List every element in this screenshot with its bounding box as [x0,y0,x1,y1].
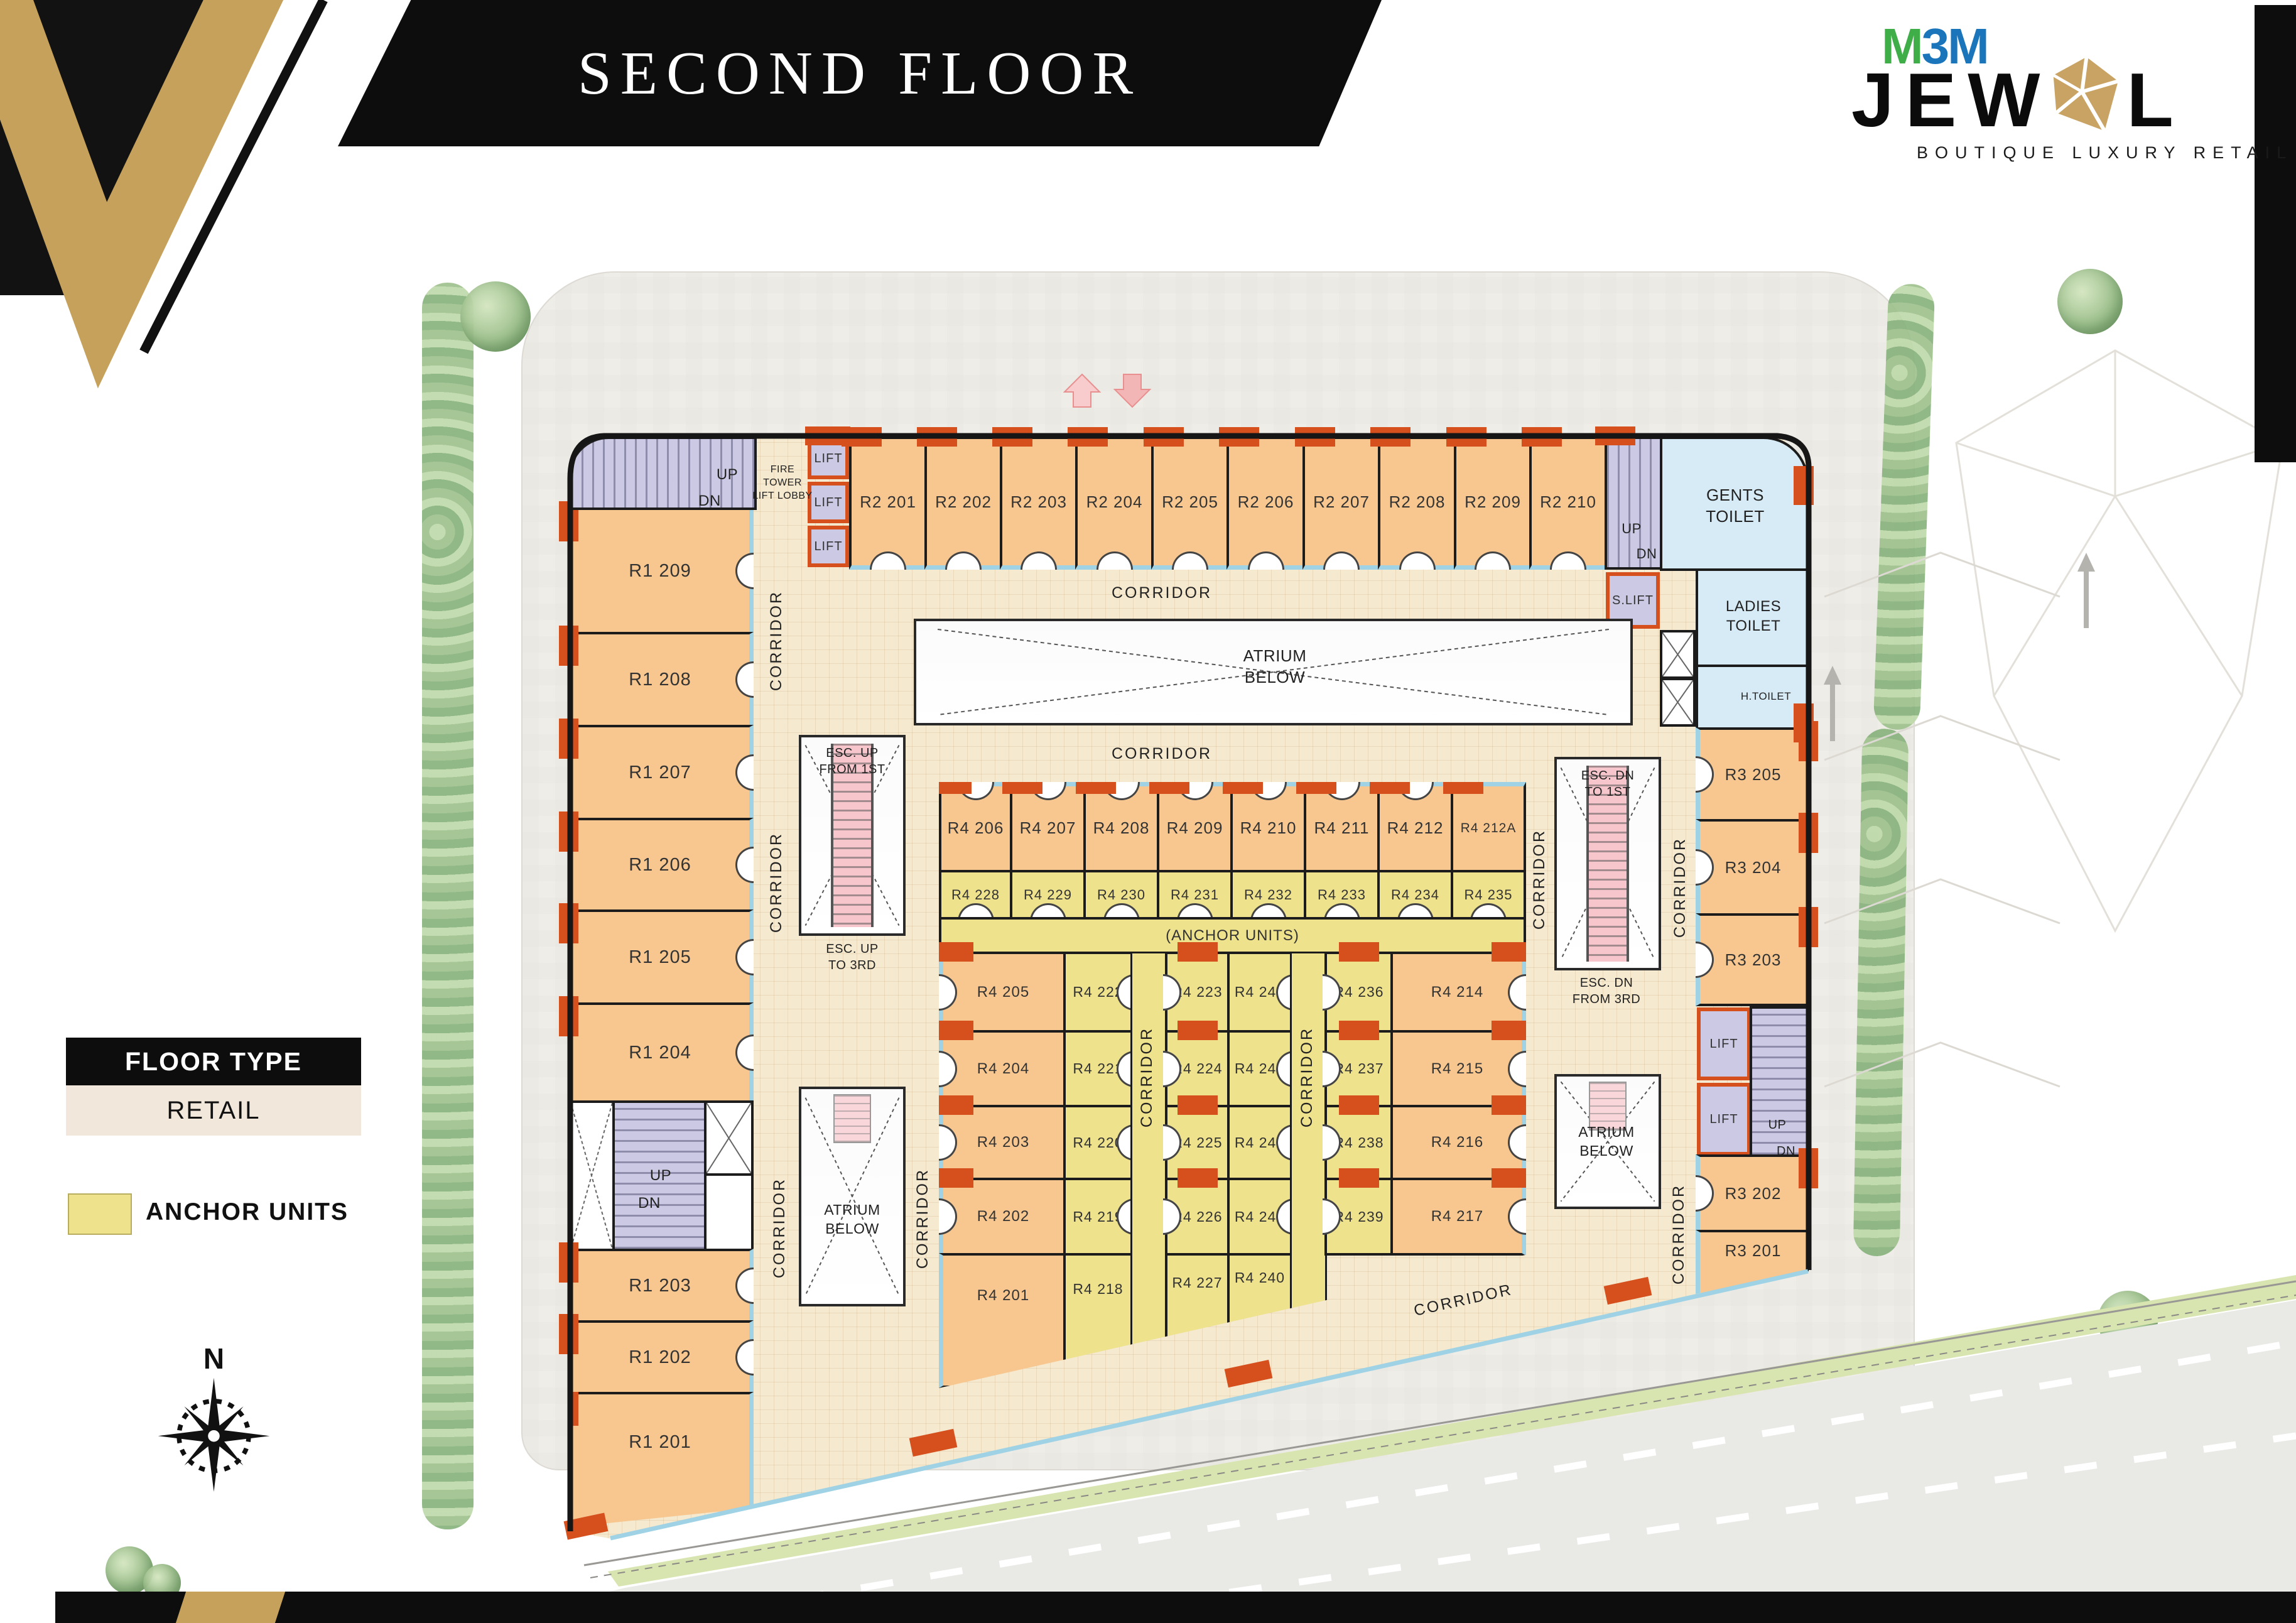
tree-top-right [2057,269,2123,334]
dn-label-nw: DN [691,491,728,511]
corridor-label-top: CORRIDOR [1080,584,1243,603]
diamond-watermark [1956,350,2283,931]
column-block [805,426,850,445]
lift-3: LIFT [808,526,849,567]
chevron-decoration [0,0,440,415]
shaft-ne-2 [1660,678,1696,727]
unit-r4-208: R4 208 [1083,782,1159,872]
up-label-east: UP [1758,1117,1796,1133]
corner-bar [2255,5,2296,462]
unit-r4-229: R4 229 [1010,870,1086,920]
corridor-label-east-2: CORRIDOR [1671,812,1690,963]
up-label-nw: UP [708,465,746,484]
lift-east-1: LIFT [1697,1007,1751,1080]
unit-r1-202: R1 202 [568,1320,754,1394]
unit-r2-207: R2 207 [1302,437,1380,570]
shaft-west-lift [704,1100,754,1176]
column-block [1595,426,1635,445]
compass-icon [156,1376,272,1492]
tree-top-left [460,281,531,352]
unit-r2-208: R2 208 [1378,437,1456,570]
unit-r2-202: R2 202 [924,437,1002,570]
up-label-ne: UP [1613,520,1650,538]
unit-r4-244: R4 244 [1227,952,1292,1033]
unit-r4-209: R4 209 [1157,782,1233,872]
ladies-toilet-label: LADIES TOILET [1703,597,1804,636]
unit-r3-202: R3 202 [1696,1154,1809,1232]
atrium-west-void [799,1087,906,1306]
corridor-label-west-2: CORRIDOR [767,807,786,958]
diamond-icon [2047,55,2123,136]
unit-r4-234: R4 234 [1377,870,1453,920]
anchor-units-strip: (ANCHOR UNITS) [939,917,1526,954]
unit-r4-217: R4 217 [1390,1178,1526,1256]
unit-r4-231: R4 231 [1157,870,1233,920]
east-staircase [1750,1006,1809,1157]
unit-r4-230: R4 230 [1083,870,1159,920]
compass-north-label: N [156,1342,272,1376]
unit-r3-205: R3 205 [1696,727,1809,822]
tree-road-3 [2198,1383,2258,1443]
corridor-label-west-atrium: CORRIDOR [914,1143,933,1294]
unit-r4-221: R4 221 [1063,1030,1133,1107]
page-title: SECOND FLOOR [578,38,1142,108]
fire-tower-lobby-label: FIRE TOWER LIFT LOBBY [752,464,813,502]
esc-dn-to-1st-label: ESC. DN TO 1ST [1548,768,1667,800]
unit-r2-203: R2 203 [1000,437,1078,570]
unit-r4-212: R4 212 [1377,782,1453,872]
unit-r1-206: R1 206 [568,818,754,912]
corridor-label-east-3: CORRIDOR [1670,1159,1689,1310]
unit-r4-242: R4 242 [1227,1105,1292,1180]
unit-r4-220: R4 220 [1063,1105,1133,1180]
hedge-right-lower [1853,728,1909,1256]
unit-r2-205: R2 205 [1151,437,1229,570]
esc-up-to-3rd-label: ESC. UP TO 3RD [796,941,909,974]
unit-r1-201: R1 201 [568,1392,754,1530]
unit-r4-241: R4 241 [1227,1178,1292,1256]
atrium-west-label: ATRIUM BELOW [793,1201,912,1239]
tree-road-2 [2148,1337,2208,1397]
unit-r1-208: R1 208 [568,632,754,727]
jewel-right: L [2126,62,2185,138]
compass-rose: N [156,1342,272,1495]
footer-gold-accent [176,1592,285,1623]
unit-r4-202: R4 202 [939,1178,1066,1256]
unit-r1-209: R1 209 [568,508,754,634]
escalator-west-stub [833,1094,871,1143]
unit-r4-243: R4 243 [1227,1030,1292,1107]
corridor-label-east-1: CORRIDOR [1530,804,1549,955]
unit-r1-207: R1 207 [568,725,754,820]
brand-jewel: JEW L [1851,55,2185,138]
unit-r4-239: R4 239 [1324,1178,1393,1256]
tree-road-4 [2247,1429,2296,1489]
h-toilet-label: H.TOILET [1728,690,1804,703]
unit-r4-211: R4 211 [1304,782,1380,872]
unit-r2-210: R2 210 [1529,437,1607,570]
shaft-west-stairs [568,1100,615,1251]
unit-r4-210: R4 210 [1230,782,1306,872]
unit-r4-228: R4 228 [939,870,1012,920]
unit-r2-204: R2 204 [1075,437,1154,570]
dn-label-east: DN [1767,1143,1805,1159]
up-label-west: UP [642,1166,680,1185]
corridor-label-central-a: CORRIDOR [1138,1002,1157,1153]
tree-road-1 [2098,1291,2158,1351]
legend-retail-value: RETAIL [66,1085,361,1136]
unit-r4-206: R4 206 [939,782,1012,872]
dn-label-west: DN [631,1193,668,1213]
corridor-label-mid: CORRIDOR [1080,745,1243,764]
shaft-ne-1 [1660,630,1696,679]
title-band: SECOND FLOOR [338,0,1382,146]
unit-r3-204: R3 204 [1696,819,1809,916]
esc-up-from-1st-label: ESC. UP FROM 1ST [796,745,909,778]
unit-r4-235: R4 235 [1451,870,1526,920]
unit-r4-233: R4 233 [1304,870,1380,920]
lift-east-2: LIFT [1697,1083,1751,1156]
unit-r2-201: R2 201 [849,437,927,570]
column-block [1794,466,1814,505]
lift-2: LIFT [808,482,849,523]
legend-anchor-label: ANCHOR UNITS [146,1198,349,1226]
unit-r2-206: R2 206 [1227,437,1305,570]
unit-r3-203: R3 203 [1696,913,1809,1006]
atrium-top-label: ATRIUM BELOW [1193,646,1356,688]
footer-band [55,1592,2296,1623]
unit-r4-226: R4 226 [1165,1178,1230,1256]
hedge-left [422,283,474,1529]
unit-r2-209: R2 209 [1454,437,1532,570]
dn-label-ne: DN [1628,545,1665,563]
gents-toilet-label: GENTS TOILET [1688,485,1782,528]
esc-dn-from-3rd-label: ESC. DN FROM 3RD [1544,975,1669,1007]
brand-tagline: BOUTIQUE LUXURY RETAIL [1917,143,2293,163]
unit-r1-205: R1 205 [568,909,754,1005]
unit-r4-232: R4 232 [1230,870,1306,920]
legend-anchor-swatch [68,1193,132,1235]
jewel-left: JEW [1851,62,2051,138]
shaft-west-duct [704,1173,754,1251]
unit-r1-203: R1 203 [568,1249,754,1323]
legend-floor-type-header: FLOOR TYPE [66,1038,361,1085]
corridor-label-central-b: CORRIDOR [1298,1002,1317,1153]
unit-r4-219: R4 219 [1063,1178,1133,1256]
column-block [1794,703,1814,742]
unit-r4-222: R4 222 [1063,952,1133,1033]
corridor-label-west-1: CORRIDOR [767,565,786,716]
unit-r1-204: R1 204 [568,1002,754,1103]
atrium-east-label: ATRIUM BELOW [1550,1123,1663,1161]
unit-r4-212a: R4 212A [1451,782,1526,872]
corridor-label-west-3: CORRIDOR [771,1153,789,1303]
unit-r4-207: R4 207 [1010,782,1086,872]
